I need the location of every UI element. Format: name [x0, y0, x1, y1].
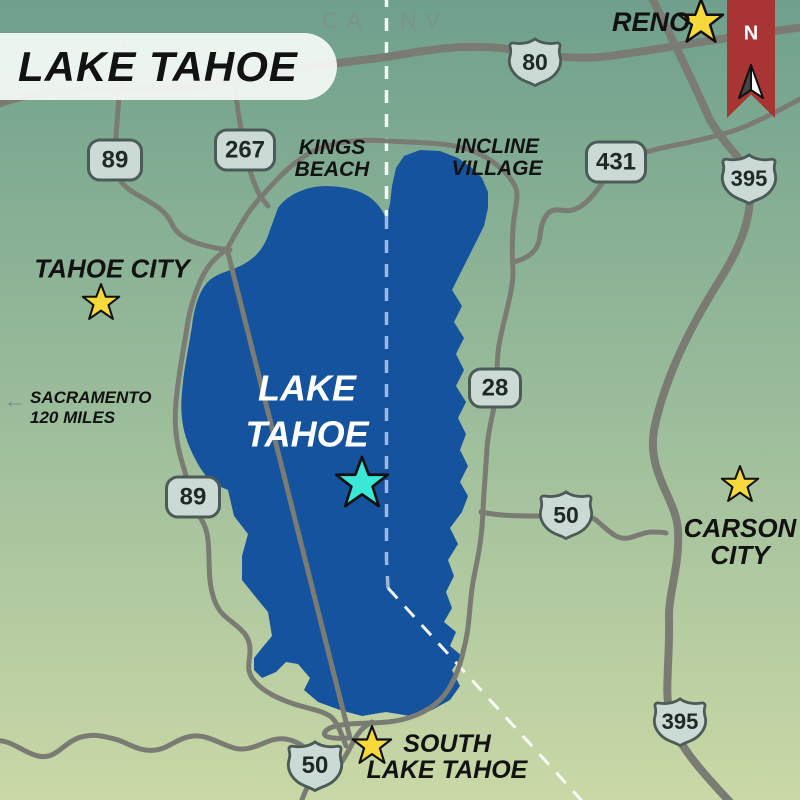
- label-line: VILLAGE: [451, 158, 542, 180]
- west-arrow-icon: ←: [3, 387, 27, 415]
- shield-number: 89: [102, 146, 129, 174]
- state-label-ca: CA: [322, 8, 370, 35]
- lake-label-line2: TAHOE: [245, 415, 368, 452]
- tahoe-city-star-icon: [81, 283, 121, 326]
- label-line: SOUTH: [367, 731, 528, 757]
- carson-city-star-icon: [720, 465, 760, 508]
- shield-number: 267: [225, 136, 265, 164]
- shield-number: 50: [553, 502, 579, 529]
- lake-label-line1: LAKE: [258, 369, 356, 406]
- shield-number: 50: [302, 752, 329, 780]
- shield-number: 395: [662, 709, 699, 735]
- highway-shield-431: 431: [585, 141, 647, 184]
- label-line: CARSON: [684, 515, 797, 542]
- highway-shield-267: 267: [214, 129, 276, 172]
- label-line: BEACH: [295, 159, 370, 181]
- highway-shield-50-east: 50: [537, 490, 595, 540]
- note-line: 120 MILES: [30, 408, 152, 428]
- note-line: SACRAMENTO: [30, 388, 152, 408]
- map-title-plaque: LAKE TAHOE: [0, 33, 337, 100]
- city-label-incline-village: INCLINE VILLAGE: [451, 136, 542, 180]
- shield-number: 28: [482, 374, 509, 402]
- label-line: CITY: [684, 542, 797, 569]
- city-label-kings-beach: KINGS BEACH: [295, 137, 370, 181]
- highway-shield-395-north: 395: [718, 153, 780, 205]
- highway-shield-395-south: 395: [649, 697, 711, 747]
- highway-shield-28: 28: [468, 368, 522, 409]
- label-line: LAKE TAHOE: [367, 757, 528, 783]
- shield-number: 431: [596, 148, 636, 176]
- city-label-reno: RENO: [612, 8, 690, 36]
- us-395-road: [648, 0, 750, 800]
- city-label-south-lake-tahoe: SOUTH LAKE TAHOE: [367, 731, 528, 783]
- map-title: LAKE TAHOE: [18, 43, 298, 91]
- sacramento-distance-note: SACRAMENTO 120 MILES: [30, 388, 152, 428]
- highway-shield-50-south: 50: [285, 740, 345, 792]
- highway-shield-89-north: 89: [87, 139, 143, 182]
- label-line: INCLINE: [451, 136, 542, 158]
- city-label-tahoe-city: TAHOE CITY: [34, 255, 190, 282]
- highway-shield-80: 80: [506, 37, 564, 87]
- shield-number: 395: [731, 166, 768, 192]
- label-line: KINGS: [295, 137, 370, 159]
- city-label-carson-city: CARSON CITY: [684, 515, 797, 569]
- lake-tahoe-map: LAKE TAHOE CA NV 89 267 431 89 28 80 395…: [0, 0, 800, 800]
- state-label-nv: NV: [400, 8, 448, 35]
- highway-shield-89-west: 89: [165, 476, 221, 519]
- shield-number: 89: [180, 483, 207, 511]
- lake-tahoe-star-icon: [334, 455, 390, 514]
- shield-number: 80: [522, 49, 548, 76]
- compass-n-label: N: [744, 23, 758, 46]
